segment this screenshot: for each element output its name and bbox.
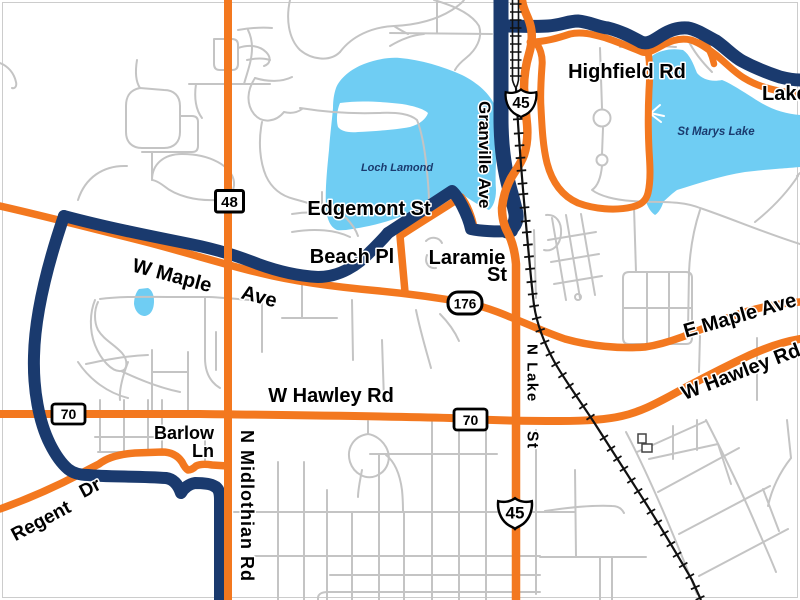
- svg-text:Highfield Rd: Highfield Rd: [568, 61, 686, 83]
- svg-text:Ln: Ln: [192, 441, 214, 461]
- svg-text:Loch Lamond: Loch Lamond: [361, 162, 433, 174]
- svg-text:N Midlothian Rd: N Midlothian Rd: [237, 430, 257, 582]
- svg-text:45: 45: [506, 504, 525, 523]
- svg-text:St: St: [524, 431, 541, 450]
- svg-text:N Lake: N Lake: [524, 344, 541, 403]
- svg-text:70: 70: [61, 406, 77, 422]
- svg-text:176: 176: [454, 297, 477, 312]
- svg-text:Lake: Lake: [762, 83, 800, 105]
- svg-text:70: 70: [463, 412, 479, 428]
- svg-text:Barlow: Barlow: [154, 423, 215, 443]
- svg-text:48: 48: [221, 194, 238, 211]
- svg-text:St Marys Lake: St Marys Lake: [677, 126, 755, 138]
- svg-text:45: 45: [512, 95, 530, 112]
- svg-text:Edgemont St: Edgemont St: [307, 198, 431, 220]
- svg-text:Beach Pl: Beach Pl: [310, 246, 394, 268]
- svg-text:Granville Ave: Granville Ave: [475, 101, 494, 208]
- svg-text:St: St: [487, 264, 507, 286]
- svg-text:W Hawley Rd: W Hawley Rd: [268, 385, 394, 407]
